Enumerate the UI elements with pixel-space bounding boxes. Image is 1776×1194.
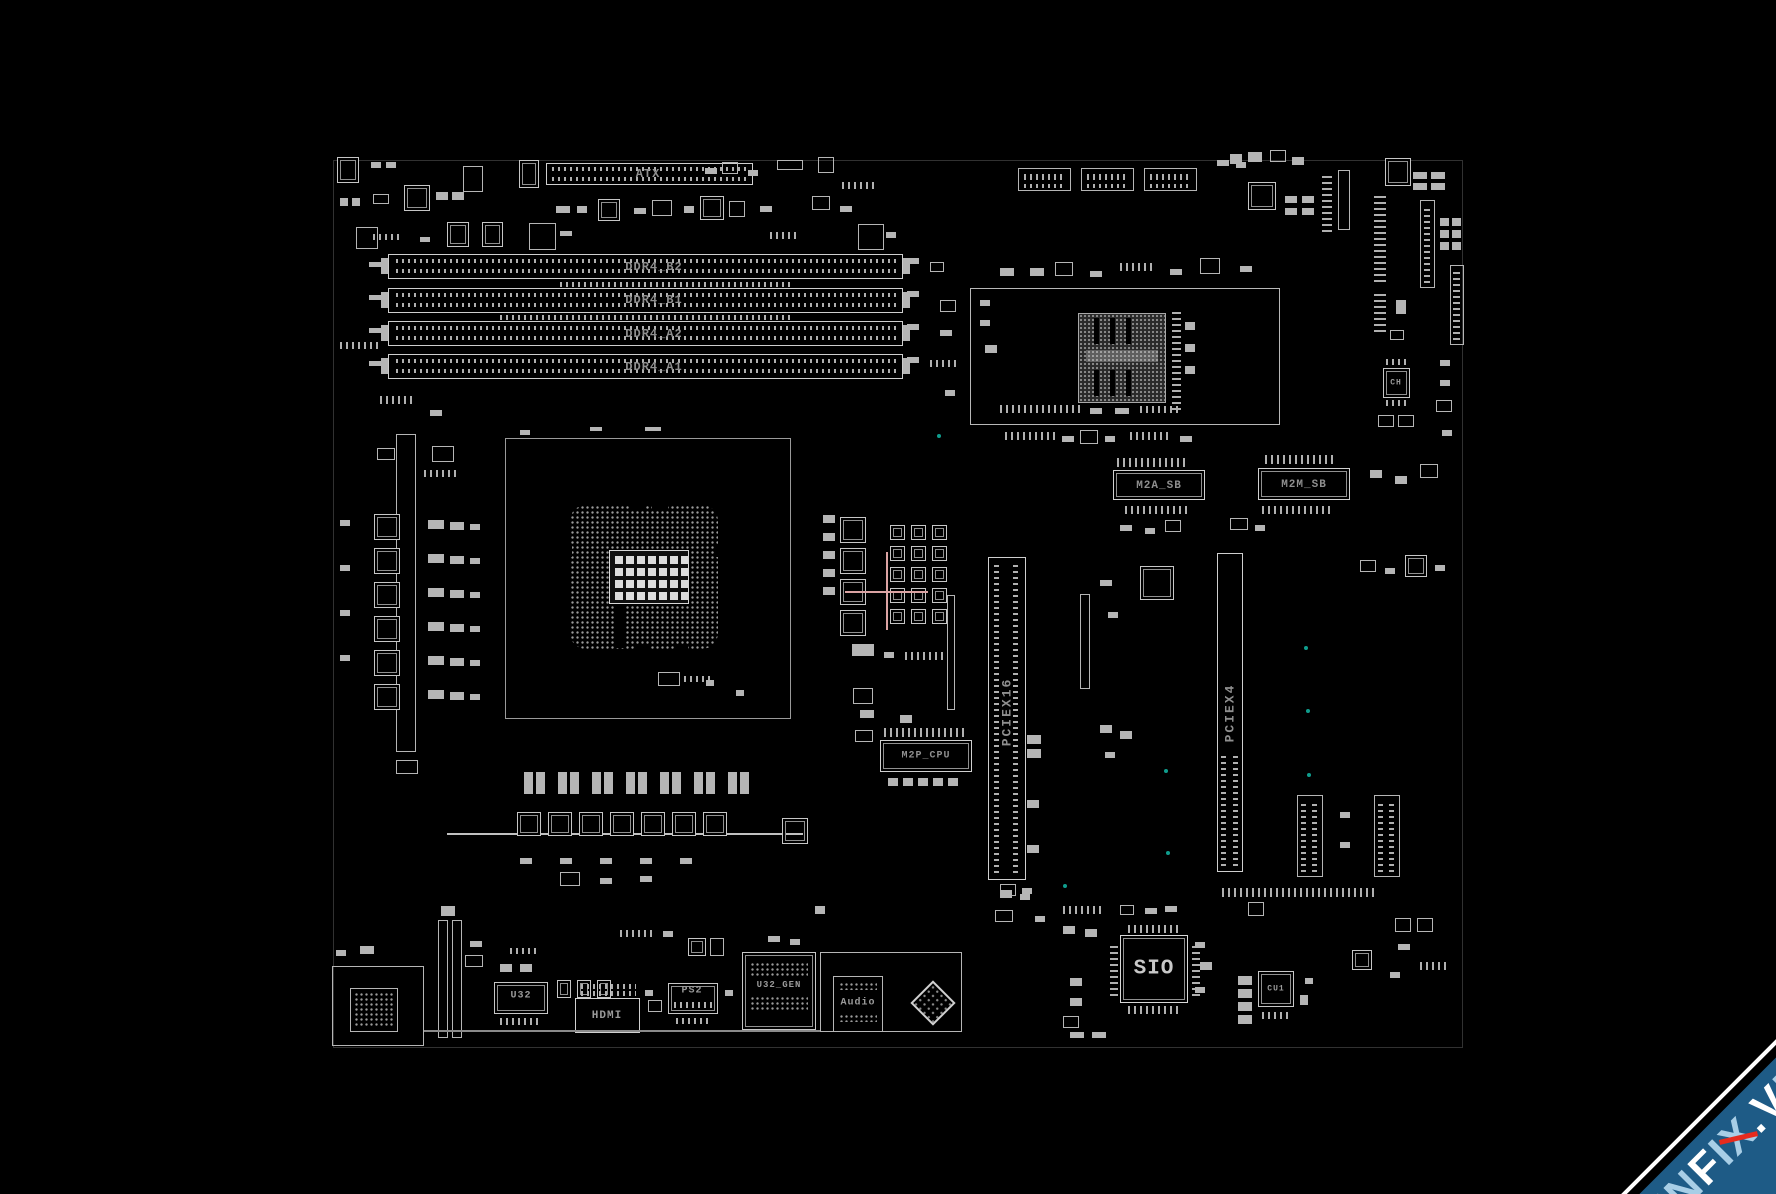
m2m-sb-label: M2M_SB: [1281, 479, 1327, 491]
solid: [428, 656, 444, 665]
choke: [840, 517, 866, 543]
solid: [1020, 894, 1030, 900]
hpins: [373, 234, 399, 240]
solid: [626, 556, 634, 564]
solid: [659, 580, 667, 588]
hpins: [1024, 184, 1065, 188]
via-marker: [937, 434, 941, 438]
mosfet: [660, 772, 669, 794]
solid: [560, 231, 572, 236]
solid: [714, 545, 720, 557]
mosfet: [558, 772, 567, 794]
choke: [374, 684, 400, 710]
hpins: [1000, 405, 1080, 413]
hpins: [1140, 406, 1180, 413]
solid: [933, 778, 943, 786]
solid: [1165, 906, 1177, 912]
via-marker: [1307, 773, 1311, 777]
via-marker: [1166, 851, 1170, 855]
solid: [907, 291, 919, 297]
box: [930, 262, 944, 272]
solid: [1085, 929, 1097, 937]
dbox: [557, 980, 571, 998]
box: [858, 224, 884, 250]
hpins: [1024, 174, 1065, 180]
vpins: [1374, 196, 1386, 282]
solid: [1305, 978, 1313, 984]
capacitor: [911, 546, 926, 561]
solid: [1185, 344, 1195, 352]
solid: [852, 644, 874, 656]
atx-label: ATX: [636, 167, 661, 181]
solid: [1070, 978, 1082, 986]
box: [377, 448, 395, 460]
solid: [1000, 890, 1012, 898]
hpins: [770, 232, 800, 239]
watermark-letter: N: [1655, 1160, 1714, 1194]
solid: [681, 556, 688, 564]
solid: [640, 858, 652, 864]
dots: [839, 1014, 877, 1022]
mosfet: [672, 772, 681, 794]
watermark-letter: .: [1732, 1097, 1776, 1142]
solid: [1398, 944, 1410, 950]
solid: [470, 558, 480, 564]
solid: [645, 990, 653, 996]
solid: [1255, 525, 1265, 531]
choke: [517, 812, 541, 836]
hpins: [930, 360, 960, 367]
solid: [1092, 1032, 1106, 1038]
dbox: [598, 199, 620, 221]
solid: [1440, 380, 1450, 386]
capacitor: [890, 546, 905, 561]
vpins: [994, 563, 999, 873]
solid: [670, 568, 678, 576]
solid: [369, 262, 381, 267]
hpins: [560, 282, 790, 287]
box: [1390, 330, 1404, 340]
mosfet: [626, 772, 635, 794]
choke: [672, 812, 696, 836]
box: [1248, 902, 1264, 916]
solid: [637, 568, 645, 576]
box: [1080, 594, 1090, 689]
dbox: [337, 157, 359, 183]
vpins: [1172, 310, 1181, 410]
solid: [1285, 208, 1297, 215]
solid: [470, 941, 482, 947]
box: [1417, 918, 1433, 932]
solid: [470, 626, 480, 632]
solid: [420, 237, 430, 242]
box: [818, 157, 834, 173]
vpins: [1453, 270, 1460, 340]
solid: [907, 357, 919, 363]
solid: [1195, 942, 1205, 948]
u32-gen-label: U32_GEN: [757, 980, 802, 990]
watermark-letter: F: [1679, 1140, 1735, 1194]
solid: [1126, 370, 1131, 396]
box: [722, 162, 738, 174]
solid: [1435, 565, 1445, 571]
box: [940, 300, 956, 312]
ddr4-b2-label: DDR4_B2: [625, 260, 682, 274]
solid: [1440, 242, 1449, 250]
solid: [1195, 987, 1205, 993]
solid: [1238, 1002, 1252, 1011]
box: [1270, 150, 1286, 162]
solid: [980, 320, 990, 326]
solid: [450, 590, 464, 598]
vpins: [1233, 756, 1238, 866]
solid: [684, 206, 694, 213]
solid: [560, 858, 572, 864]
dbox: [700, 196, 724, 220]
mosfet: [524, 772, 533, 794]
hpins: [581, 991, 636, 996]
solid: [681, 580, 688, 588]
cursor-crosshair-v: [886, 552, 888, 630]
solid: [940, 330, 952, 336]
choke: [703, 812, 727, 836]
hpins: [676, 1018, 710, 1024]
solid: [636, 644, 650, 650]
box: [652, 200, 672, 216]
solid: [1105, 752, 1115, 758]
solid: [948, 778, 958, 786]
dbox: [1248, 182, 1276, 210]
box: [529, 223, 556, 250]
solid: [1440, 230, 1449, 238]
box: [947, 595, 955, 710]
solid: [566, 545, 572, 557]
box: [432, 446, 454, 462]
solid: [1000, 268, 1014, 276]
solid: [860, 710, 874, 718]
choke: [374, 548, 400, 574]
hpins: [1420, 962, 1450, 970]
solid: [1170, 269, 1182, 275]
box: [812, 196, 830, 210]
watermark-edge-line: [1585, 1003, 1776, 1194]
hpins: [620, 930, 656, 937]
hpins: [1128, 925, 1180, 933]
hpins: [1262, 1012, 1290, 1019]
box: [853, 688, 873, 704]
solid: [648, 580, 656, 588]
capacitor: [890, 525, 905, 540]
solid: [577, 206, 587, 213]
vpins: [1312, 800, 1317, 872]
solid: [659, 568, 667, 576]
solid: [436, 192, 448, 200]
capacitor: [932, 567, 947, 582]
solid: [681, 592, 688, 600]
solid: [556, 206, 570, 213]
box: [1200, 258, 1220, 274]
ddr4-a2-label: DDR4_A2: [625, 327, 682, 341]
ddr4-b1-label: DDR4_B1: [625, 293, 682, 307]
solid: [360, 946, 374, 954]
solid: [1185, 322, 1195, 330]
box: [995, 910, 1013, 922]
solid: [1370, 470, 1382, 478]
watermark-ribbon: HNFIX.VN: [1436, 854, 1776, 1194]
via-marker: [1304, 646, 1308, 650]
box: [465, 955, 483, 967]
solid: [725, 990, 733, 996]
bracket-bar: [438, 920, 448, 1038]
solid: [705, 168, 717, 174]
solid: [1110, 370, 1115, 396]
box: [658, 672, 680, 686]
choke: [374, 616, 400, 642]
solid: [428, 554, 444, 563]
box: [1338, 170, 1350, 230]
mosfet: [604, 772, 613, 794]
box: [1165, 520, 1181, 532]
solid: [371, 162, 381, 168]
solid: [1035, 916, 1045, 922]
via-marker: [1164, 769, 1168, 773]
solid: [1452, 218, 1461, 226]
solid: [1062, 436, 1074, 442]
solid: [907, 324, 919, 330]
solid: [1390, 972, 1400, 978]
solid: [452, 192, 464, 200]
hpins: [1063, 906, 1103, 914]
dbox: [447, 222, 469, 247]
solid: [630, 505, 644, 511]
solid: [1340, 812, 1350, 818]
solid: [386, 162, 396, 168]
solid: [648, 556, 656, 564]
solid: [645, 427, 661, 431]
solid: [626, 580, 634, 588]
solid: [1302, 196, 1314, 203]
dbox: [1405, 555, 1427, 577]
solid: [1236, 162, 1246, 168]
watermark-red-slash: [1719, 1131, 1758, 1145]
solid: [340, 610, 350, 616]
capacitor: [932, 525, 947, 540]
solid: [441, 906, 455, 916]
solid: [1027, 800, 1039, 808]
solid: [1110, 318, 1115, 344]
dots: [750, 996, 808, 1012]
dots: [354, 992, 394, 1028]
pciex16-label: PCIEX16: [1000, 678, 1015, 747]
vpins: [1221, 756, 1226, 866]
solid: [1413, 172, 1427, 179]
solid: [1285, 196, 1297, 203]
solid: [614, 598, 624, 648]
solid: [520, 858, 532, 864]
box: [463, 166, 483, 192]
solid: [1340, 842, 1350, 848]
hpins: [884, 728, 968, 737]
box: [1395, 918, 1411, 932]
hpins: [500, 315, 790, 320]
solid: [663, 931, 673, 937]
hpins: [674, 1002, 712, 1008]
solid: [381, 358, 388, 374]
choke: [840, 548, 866, 574]
solid: [1030, 268, 1044, 276]
solid: [450, 624, 464, 632]
solid: [1396, 300, 1406, 314]
solid: [1431, 183, 1445, 190]
solid: [1100, 580, 1112, 586]
solid: [430, 410, 442, 416]
mosfet: [740, 772, 749, 794]
capacitor: [932, 588, 947, 603]
solid: [1094, 318, 1099, 344]
solid: [676, 644, 688, 650]
watermark-band: HNFIX.VN: [1537, 957, 1776, 1194]
solid: [823, 515, 835, 523]
hpins: [380, 396, 416, 404]
solid: [615, 568, 623, 576]
solid: [381, 292, 388, 308]
hpins: [1130, 432, 1170, 440]
solid: [823, 569, 835, 577]
hpins: [842, 182, 876, 189]
solid: [1452, 242, 1461, 250]
box: [777, 160, 803, 170]
box: [648, 1000, 662, 1012]
solid: [1120, 731, 1132, 739]
hpins: [1087, 174, 1128, 180]
solid: [640, 876, 652, 882]
vpins: [1110, 944, 1118, 996]
solid: [1070, 998, 1082, 1006]
solid: [1292, 157, 1304, 165]
hpins: [1150, 184, 1191, 188]
solid: [670, 580, 678, 588]
hpins: [510, 948, 540, 954]
solid: [470, 524, 480, 530]
choke: [610, 812, 634, 836]
choke: [548, 812, 572, 836]
solid: [1090, 408, 1102, 414]
solid: [815, 906, 825, 914]
solid: [670, 556, 678, 564]
hpins: [1262, 506, 1334, 514]
dots: [839, 982, 877, 990]
solid: [1200, 962, 1212, 970]
vpins: [1389, 800, 1394, 872]
choke: [374, 582, 400, 608]
box: [1230, 518, 1248, 530]
solid: [340, 520, 350, 526]
solid: [790, 939, 800, 945]
ddr4-a1-label: DDR4_A1: [625, 360, 682, 374]
boardview-canvas: ATXDDR4_B2DDR4_B1DDR4_A2DDR4_A1M2P_CPUM2…: [0, 0, 1776, 1194]
solid: [1094, 370, 1099, 396]
solid: [340, 565, 350, 571]
solid: [907, 258, 919, 264]
solid: [1108, 612, 1118, 618]
choke: [782, 818, 808, 844]
solid: [1238, 989, 1252, 998]
solid: [450, 522, 464, 530]
solid: [760, 206, 772, 212]
solid: [884, 652, 894, 658]
solid: [450, 692, 464, 700]
hpins: [1125, 506, 1190, 514]
watermark-letter: N: [1764, 1051, 1776, 1110]
solid: [1217, 160, 1229, 166]
mosfet: [638, 772, 647, 794]
mosfet: [570, 772, 579, 794]
hpins: [424, 470, 456, 477]
solid: [428, 690, 444, 699]
solid: [659, 556, 667, 564]
solid: [1395, 476, 1407, 484]
vpins: [1374, 292, 1386, 332]
choke: [641, 812, 665, 836]
solid: [1385, 568, 1395, 574]
solid: [1027, 735, 1041, 744]
capacitor: [932, 609, 947, 624]
solid: [1145, 528, 1155, 534]
dbox: [404, 185, 430, 211]
hdmi-label: HDMI: [592, 1010, 622, 1022]
solid: [1452, 230, 1461, 238]
bracket-bar: [452, 920, 462, 1038]
watermark-letter: X: [1710, 1107, 1768, 1165]
solid: [1440, 218, 1449, 226]
solid: [1100, 725, 1112, 733]
solid: [1126, 318, 1131, 344]
solid: [670, 592, 678, 600]
solid: [1027, 749, 1041, 758]
hpins: [1222, 888, 1374, 897]
board-bottom-edge: [424, 1030, 820, 1032]
choke: [374, 650, 400, 676]
vpins: [1301, 800, 1306, 872]
solid: [888, 778, 898, 786]
hpins: [1120, 263, 1156, 271]
solid: [340, 655, 350, 661]
dots: [750, 962, 808, 978]
watermark-letter: V: [1742, 1075, 1776, 1133]
solid: [520, 964, 532, 972]
solid: [918, 778, 928, 786]
solid: [428, 520, 444, 529]
box: [1436, 400, 1452, 412]
solid: [1238, 1015, 1252, 1024]
solid: [1027, 845, 1039, 853]
hpins: [1128, 1006, 1180, 1014]
solid: [1302, 208, 1314, 215]
mosfet: [694, 772, 703, 794]
hpins: [340, 342, 380, 349]
box: [373, 194, 389, 204]
solid: [428, 622, 444, 631]
solid: [1115, 408, 1129, 414]
solid: [381, 325, 388, 341]
solid: [381, 258, 388, 274]
solid: [352, 198, 360, 206]
box: [1420, 464, 1438, 478]
box: [396, 760, 418, 774]
solid: [985, 345, 997, 353]
hpins: [581, 984, 636, 989]
solid: [637, 580, 645, 588]
